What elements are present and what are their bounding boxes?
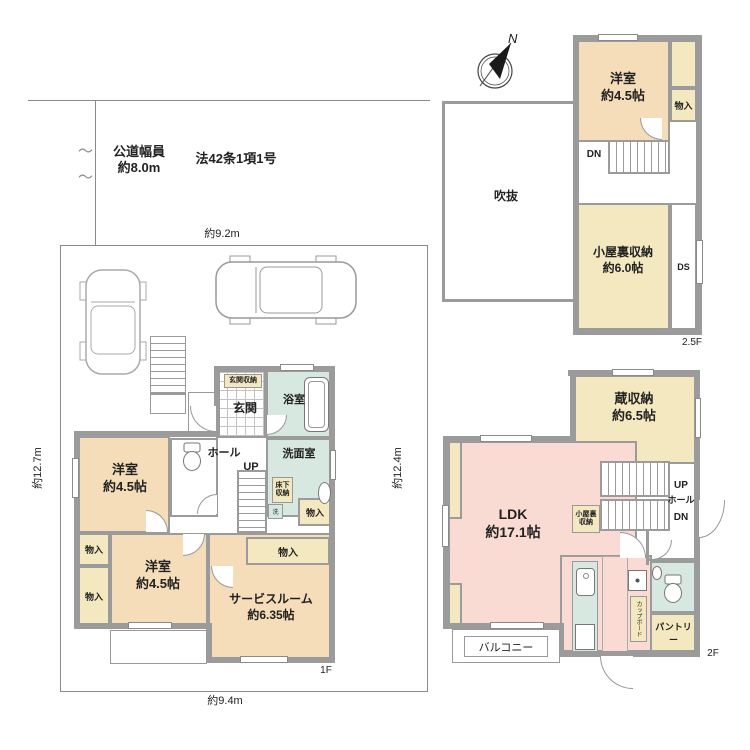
kura-storage-label: 蔵収納 約6.5帖 — [578, 392, 690, 424]
window-mark — [490, 622, 544, 629]
room-closet: 物入 — [670, 88, 697, 122]
window-mark — [480, 435, 532, 442]
floor1-label: 1F — [316, 665, 336, 676]
dn-label: DN — [669, 512, 693, 523]
window-mark — [442, 505, 449, 547]
hall-label: ホール — [664, 496, 698, 506]
wall — [573, 35, 579, 335]
pantry-label: パントリー — [652, 620, 695, 646]
wall — [696, 35, 702, 335]
balcony-inner: バルコニー — [464, 636, 548, 657]
site-dim-left: 約12.7m — [32, 438, 44, 498]
wall — [570, 370, 576, 442]
window-mark — [612, 369, 654, 376]
door-arc — [620, 532, 646, 558]
compass-north-label: N — [508, 31, 518, 46]
service-room-label: サービスルーム 約6.35帖 — [212, 592, 330, 624]
door-arc — [652, 540, 672, 560]
room-closet: 物入 — [78, 533, 110, 566]
floor25-label: 2.5F — [678, 337, 706, 348]
room-closet: 物入 — [78, 566, 110, 626]
window-mark — [598, 34, 638, 41]
wall — [74, 431, 216, 437]
toilet-icon — [180, 442, 204, 472]
ldk-label: LDK 約17.1帖 — [458, 505, 568, 541]
stairs-2f-upper — [600, 461, 670, 497]
western-room-25f-label: 洋室 約4.5帖 — [580, 72, 666, 104]
underfloor-storage-label: 床下収納 — [273, 482, 292, 499]
stairs-2f-lower — [600, 499, 670, 531]
window-mark — [330, 450, 336, 480]
room-storage-25f — [670, 40, 697, 88]
western-room-2-label: 洋室 約4.5帖 — [113, 560, 203, 592]
dn-label: DN — [582, 149, 606, 160]
terrace — [110, 630, 207, 664]
washer-space: 洗 — [268, 504, 283, 519]
kitchen-sink — [576, 568, 595, 596]
door-arc — [600, 656, 633, 689]
door-arc — [699, 500, 725, 538]
parked-car-icon — [212, 250, 360, 330]
stove — [575, 624, 595, 650]
entrance-storage: 玄関収納 — [224, 374, 262, 388]
duct-space-label: DS — [677, 262, 690, 272]
kitchen-island — [602, 556, 628, 652]
parked-car-icon — [72, 266, 154, 378]
attic-storage-label: 小屋裏収納 約6.0帖 — [578, 245, 668, 277]
closet-label: 物入 — [85, 543, 103, 556]
road-upper-line — [28, 100, 430, 101]
site-dim-bottom: 約9.4m — [195, 695, 255, 707]
window-mark — [128, 622, 172, 629]
entrance-label: 玄関 — [224, 402, 266, 415]
stairs-25f — [608, 140, 670, 174]
washroom-label: 洗面室 — [270, 448, 328, 460]
window-mark — [696, 240, 703, 284]
washbasin-icon — [652, 566, 662, 580]
ldk-side-closet — [448, 583, 462, 627]
site-dim-right: 約12.4m — [392, 438, 404, 498]
underfloor-storage: 床下収納 — [272, 477, 293, 503]
compass-icon: N — [470, 30, 525, 95]
dimension-break-icon: 〜 — [78, 166, 93, 187]
room-pantry: パントリー — [650, 613, 697, 652]
road-width-value: 約8.0m — [102, 161, 176, 175]
void-label: 吹抜 — [480, 190, 532, 203]
window-mark — [280, 364, 314, 371]
closet-label: 物入 — [85, 590, 103, 603]
bathroom-label: 浴室 — [272, 394, 316, 406]
road-law-label: 法42条1項1号 — [180, 152, 292, 166]
road-width-label: 公道幅員 — [102, 145, 176, 159]
window-mark — [695, 398, 701, 438]
cupboard-label: カップボード — [634, 598, 643, 640]
room-closet: 物入 — [246, 537, 330, 565]
attic-storage-small: 小屋裏収納 — [572, 505, 600, 533]
approach-landing — [150, 394, 186, 414]
toilet-icon — [661, 574, 685, 604]
stairs-1f — [237, 470, 267, 533]
approach-steps — [150, 336, 186, 394]
dimension-break-icon: 〜 — [78, 140, 93, 161]
floorplan-image: 〜 〜 公道幅員 約8.0m 法42条1項1号 約9.2m 約9.4m 約12.… — [0, 0, 750, 750]
window-mark — [72, 458, 79, 498]
washbasin-icon — [318, 482, 331, 504]
cupboard: カップボード — [630, 596, 647, 642]
balcony-label: バルコニー — [479, 639, 534, 655]
washer-label: 洗 — [272, 507, 278, 516]
duct-space: DS — [670, 203, 697, 330]
floor2-label: 2F — [702, 648, 724, 659]
closet-label: 物入 — [674, 99, 692, 112]
hall-label: ホール — [203, 447, 245, 459]
washer-space-2f — [628, 570, 647, 591]
attic-storage-small-label: 小屋裏収納 — [573, 511, 599, 528]
up-label: UP — [669, 480, 693, 491]
closet-label: 物入 — [278, 544, 298, 559]
closet-label: 物入 — [306, 506, 324, 519]
faucet-icon — [583, 573, 589, 579]
wall — [573, 329, 702, 335]
western-room-1-label: 洋室 約4.5帖 — [85, 463, 165, 495]
window-mark — [240, 656, 288, 663]
entrance-storage-label: 玄関収納 — [229, 377, 257, 385]
wall — [206, 628, 212, 663]
road-width-dimension-line — [95, 100, 96, 245]
up-label: UP — [238, 461, 264, 473]
wall — [214, 366, 334, 372]
site-dim-top: 約9.2m — [192, 228, 252, 240]
